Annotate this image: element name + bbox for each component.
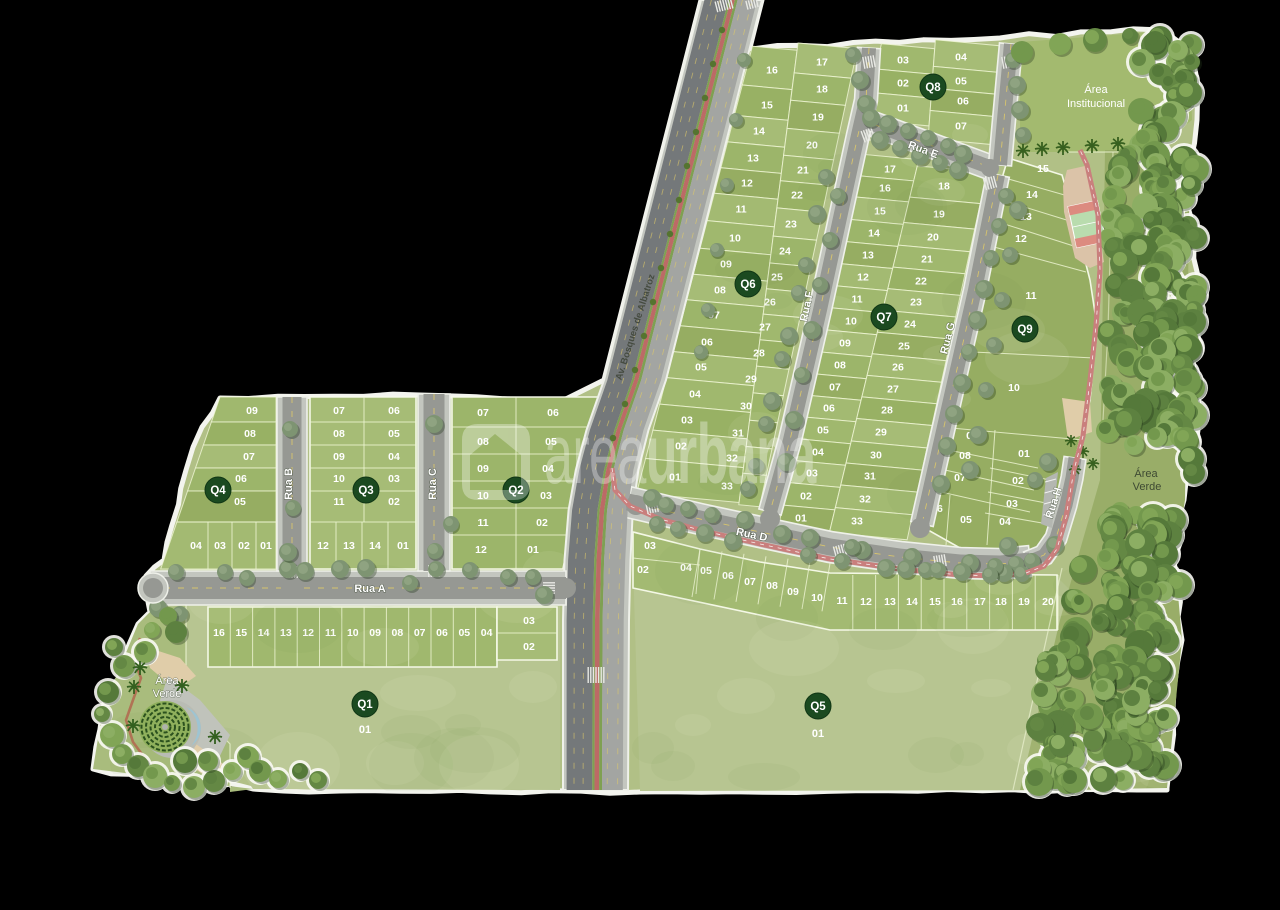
svg-text:23: 23 xyxy=(785,219,797,231)
svg-text:06: 06 xyxy=(436,627,448,639)
svg-text:01: 01 xyxy=(359,724,371,736)
svg-text:12: 12 xyxy=(741,178,753,190)
svg-text:03: 03 xyxy=(388,473,400,485)
svg-text:11: 11 xyxy=(477,517,488,529)
svg-text:33: 33 xyxy=(851,516,863,528)
svg-text:03: 03 xyxy=(644,540,656,552)
svg-text:14: 14 xyxy=(868,228,880,240)
svg-text:11: 11 xyxy=(735,204,746,216)
svg-text:24: 24 xyxy=(904,319,916,331)
svg-text:29: 29 xyxy=(745,374,757,386)
svg-text:15: 15 xyxy=(235,627,247,639)
svg-text:14: 14 xyxy=(753,126,765,138)
svg-text:21: 21 xyxy=(797,165,809,177)
svg-text:Verde: Verde xyxy=(1133,481,1162,493)
svg-text:01: 01 xyxy=(812,728,824,740)
svg-text:12: 12 xyxy=(860,596,872,608)
svg-text:21: 21 xyxy=(921,254,933,266)
svg-text:05: 05 xyxy=(388,428,400,440)
svg-text:14: 14 xyxy=(1026,189,1038,201)
svg-text:05: 05 xyxy=(960,514,972,526)
svg-text:08: 08 xyxy=(766,580,778,592)
svg-text:04: 04 xyxy=(689,389,701,401)
svg-text:20: 20 xyxy=(927,232,939,244)
svg-text:03: 03 xyxy=(897,55,909,67)
svg-text:12: 12 xyxy=(317,540,329,552)
svg-text:Verde: Verde xyxy=(153,688,182,700)
svg-text:08: 08 xyxy=(714,285,726,297)
svg-text:01: 01 xyxy=(795,513,807,525)
svg-text:Área: Área xyxy=(155,674,179,687)
svg-text:23: 23 xyxy=(910,297,922,309)
svg-text:02: 02 xyxy=(523,641,535,653)
svg-text:07: 07 xyxy=(333,405,345,417)
svg-text:10: 10 xyxy=(729,233,741,245)
svg-text:12: 12 xyxy=(857,272,869,284)
svg-text:10: 10 xyxy=(811,592,823,604)
svg-text:Rua B: Rua B xyxy=(283,468,295,500)
svg-text:01: 01 xyxy=(1018,448,1030,460)
svg-text:Rua C: Rua C xyxy=(427,468,439,500)
svg-text:16: 16 xyxy=(213,627,225,639)
svg-text:Q1: Q1 xyxy=(357,699,373,711)
svg-text:13: 13 xyxy=(884,596,896,608)
svg-text:13: 13 xyxy=(343,540,355,552)
svg-text:28: 28 xyxy=(881,405,893,417)
svg-text:Q4: Q4 xyxy=(210,485,226,497)
svg-text:Área: Área xyxy=(1084,83,1108,96)
svg-text:15: 15 xyxy=(761,100,773,112)
svg-text:15: 15 xyxy=(1037,163,1049,175)
svg-text:05: 05 xyxy=(695,362,707,374)
svg-text:02: 02 xyxy=(897,78,909,90)
svg-text:areaurbana: areaurbana xyxy=(544,407,817,501)
svg-text:06: 06 xyxy=(388,405,400,417)
svg-text:17: 17 xyxy=(816,57,828,69)
svg-text:08: 08 xyxy=(333,428,345,440)
svg-text:07: 07 xyxy=(477,407,489,419)
svg-text:02: 02 xyxy=(238,540,250,552)
svg-text:09: 09 xyxy=(246,405,258,417)
svg-text:19: 19 xyxy=(1018,596,1030,608)
svg-text:Q5: Q5 xyxy=(810,701,826,713)
svg-text:14: 14 xyxy=(906,596,918,608)
svg-text:12: 12 xyxy=(1015,233,1027,245)
svg-text:01: 01 xyxy=(897,103,909,115)
svg-text:07: 07 xyxy=(243,451,255,463)
svg-text:02: 02 xyxy=(637,564,649,576)
svg-text:09: 09 xyxy=(477,463,489,475)
svg-text:04: 04 xyxy=(190,540,202,552)
svg-text:03: 03 xyxy=(1006,498,1018,510)
svg-text:27: 27 xyxy=(759,322,771,334)
svg-text:02: 02 xyxy=(388,496,400,508)
svg-text:16: 16 xyxy=(766,65,778,77)
svg-text:24: 24 xyxy=(779,246,791,258)
svg-text:12: 12 xyxy=(475,544,487,556)
svg-text:29: 29 xyxy=(875,427,887,439)
svg-text:Q6: Q6 xyxy=(740,279,755,291)
svg-text:31: 31 xyxy=(864,471,876,483)
svg-text:05: 05 xyxy=(955,76,967,88)
svg-text:10: 10 xyxy=(333,473,345,485)
svg-text:02: 02 xyxy=(536,517,548,529)
svg-text:25: 25 xyxy=(898,341,910,353)
svg-text:32: 32 xyxy=(859,494,871,506)
svg-text:04: 04 xyxy=(955,52,967,64)
svg-text:07: 07 xyxy=(414,627,426,639)
svg-text:Q8: Q8 xyxy=(925,82,941,94)
svg-text:08: 08 xyxy=(834,360,846,372)
svg-text:13: 13 xyxy=(747,153,759,165)
svg-text:06: 06 xyxy=(823,403,835,415)
svg-text:27: 27 xyxy=(887,384,899,396)
svg-text:11: 11 xyxy=(333,496,344,508)
svg-text:Q9: Q9 xyxy=(1017,324,1032,336)
svg-text:22: 22 xyxy=(915,276,927,288)
svg-text:04: 04 xyxy=(481,627,493,639)
svg-text:04: 04 xyxy=(388,451,400,463)
svg-text:06: 06 xyxy=(235,473,247,485)
svg-text:14: 14 xyxy=(369,540,381,552)
svg-text:11: 11 xyxy=(836,595,847,607)
svg-text:05: 05 xyxy=(458,627,470,639)
svg-text:18: 18 xyxy=(816,84,828,96)
svg-text:02: 02 xyxy=(1012,475,1024,487)
svg-text:06: 06 xyxy=(957,96,969,108)
svg-text:09: 09 xyxy=(333,451,345,463)
svg-text:11: 11 xyxy=(1025,290,1036,302)
svg-text:Q7: Q7 xyxy=(876,312,891,324)
svg-text:30: 30 xyxy=(870,450,882,462)
svg-text:08: 08 xyxy=(959,450,971,462)
svg-text:Área: Área xyxy=(1134,467,1158,480)
svg-text:Q3: Q3 xyxy=(358,485,373,497)
svg-text:04: 04 xyxy=(999,516,1011,528)
svg-text:08: 08 xyxy=(244,428,256,440)
svg-text:07: 07 xyxy=(829,382,841,394)
svg-text:13: 13 xyxy=(862,250,874,262)
svg-text:19: 19 xyxy=(812,112,824,124)
svg-text:28: 28 xyxy=(753,348,765,360)
svg-text:Institucional: Institucional xyxy=(1067,98,1125,110)
svg-text:01: 01 xyxy=(397,540,409,552)
svg-text:05: 05 xyxy=(234,496,246,508)
svg-text:Rua A: Rua A xyxy=(354,583,385,595)
svg-text:01: 01 xyxy=(260,540,272,552)
svg-text:03: 03 xyxy=(214,540,226,552)
svg-text:26: 26 xyxy=(892,362,904,374)
svg-text:05: 05 xyxy=(817,425,829,437)
